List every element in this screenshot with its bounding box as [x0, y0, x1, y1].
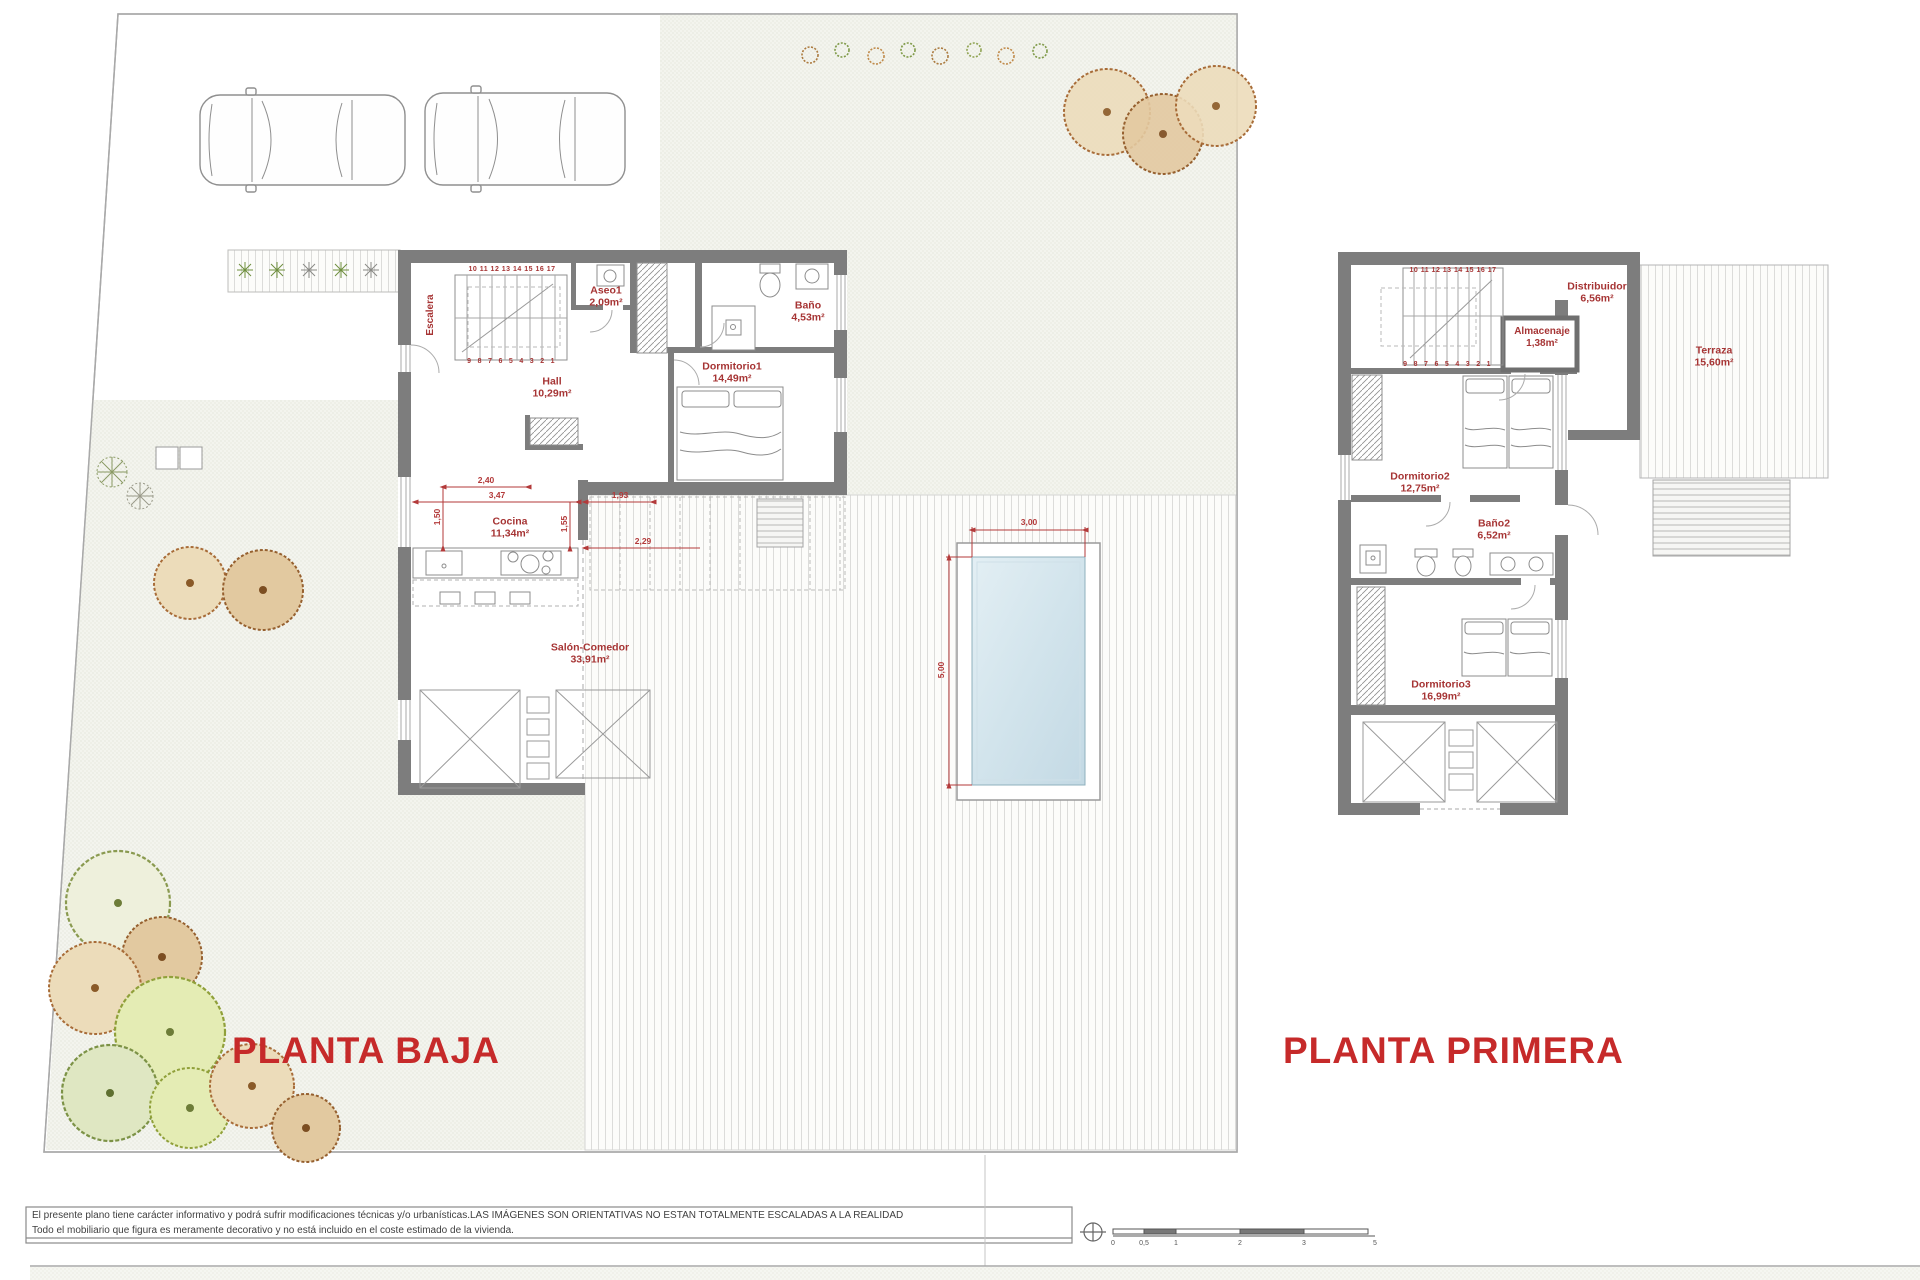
pool-dim-width: 3,00	[1021, 517, 1038, 527]
pool	[957, 543, 1100, 800]
room-area: 6,52m²	[1477, 530, 1510, 542]
dim-155: 1,55	[559, 516, 569, 533]
disclaimer-line-2: Todo el mobiliario que figura es meramen…	[32, 1225, 514, 1236]
room-name: Baño2	[1477, 518, 1510, 530]
room-name: Almacenaje	[1514, 326, 1570, 338]
scale-label-2: 2	[1238, 1240, 1242, 1247]
room-name: Distribuidor	[1567, 281, 1627, 293]
dim-347: 3,47	[489, 490, 506, 500]
title-planta-primera: PLANTA PRIMERA	[1283, 1030, 1624, 1072]
room-label-salon: Salón-Comedor 33,91m²	[551, 642, 629, 667]
room-area: 6,56m²	[1567, 293, 1627, 305]
disclaimer-line-1: El presente plano tiene carácter informa…	[32, 1210, 903, 1221]
scale-label-0: 0	[1111, 1240, 1115, 1247]
room-area: 12,75m²	[1390, 483, 1450, 495]
room-area: 2,09m²	[589, 297, 622, 309]
room-name: Aseo1	[589, 285, 622, 297]
first-floor-plan	[1338, 252, 1828, 815]
car-2	[425, 86, 625, 192]
room-area: 11,34m²	[491, 528, 530, 540]
room-label-escalera: Escalera	[425, 294, 437, 335]
room-name: Dormitorio3	[1411, 679, 1471, 691]
room-name: Dormitorio1	[702, 361, 762, 373]
room-label-bano: Baño 4,53m²	[791, 300, 824, 325]
plan-drawing	[0, 0, 1920, 1280]
room-label-cocina: Cocina 11,34m²	[491, 516, 530, 541]
room-label-aseo1: Aseo1 2,09m²	[589, 285, 622, 310]
scale-label-5: 5	[1373, 1240, 1377, 1247]
hedge	[228, 250, 400, 292]
room-label-almacenaje: Almacenaje 1,38m²	[1514, 326, 1570, 350]
dim-240: 2,40	[478, 475, 495, 485]
stair-numbers-bottom-ground: 9 8 7 6 5 4 3 2 1	[467, 358, 557, 366]
car-1	[200, 88, 405, 192]
room-area: 4,53m²	[791, 312, 824, 324]
dim-229: 2,29	[635, 536, 652, 546]
scale-label-05: 0,5	[1139, 1240, 1149, 1247]
scale-bar	[1113, 1229, 1375, 1236]
stair-numbers-top-first: 10 11 12 13 14 15 16 17	[1409, 267, 1496, 275]
bed-dorm1	[677, 387, 783, 480]
scale-label-1: 1	[1174, 1240, 1178, 1247]
room-name: Terraza	[1694, 345, 1733, 357]
north-symbol	[1080, 1223, 1106, 1241]
bottom-strip	[30, 1266, 1920, 1280]
room-label-bano2: Baño2 6,52m²	[1477, 518, 1510, 543]
room-area: 33,91m²	[551, 654, 629, 666]
room-area: 16,99m²	[1411, 691, 1471, 703]
dim-150: 1,50	[432, 509, 442, 526]
room-label-distribuidor: Distribuidor 6,56m²	[1567, 281, 1627, 306]
room-name: Hall	[532, 376, 571, 388]
dim-193: 1,93	[612, 490, 629, 500]
terraza-deck	[1640, 265, 1828, 478]
scale-label-3: 3	[1302, 1240, 1306, 1247]
room-area: 1,38m²	[1514, 338, 1570, 350]
room-area: 15,60m²	[1694, 357, 1733, 369]
pool-dim-height: 5,00	[936, 662, 946, 679]
room-label-terraza: Terraza 15,60m²	[1694, 345, 1733, 370]
room-label-hall: Hall 10,29m²	[532, 376, 571, 401]
terraza-louver	[1653, 480, 1790, 556]
pool-deck	[585, 495, 1237, 1150]
room-name: Cocina	[491, 516, 530, 528]
room-area: 10,29m²	[532, 388, 571, 400]
room-label-dormitorio1: Dormitorio1 14,49m²	[702, 361, 762, 386]
room-name: Baño	[791, 300, 824, 312]
stair-numbers-top-ground: 10 11 12 13 14 15 16 17	[468, 266, 555, 274]
room-name: Salón-Comedor	[551, 642, 629, 654]
room-area: 14,49m²	[702, 373, 762, 385]
room-name: Dormitorio2	[1390, 471, 1450, 483]
title-planta-baja: PLANTA BAJA	[232, 1030, 500, 1072]
stair-numbers-bottom-first: 9 8 7 6 5 4 3 2 1	[1403, 361, 1493, 369]
floor-plan-sheet: Escalera 10 11 12 13 14 15 16 17 9 8 7 6…	[0, 0, 1920, 1280]
room-label-dormitorio2: Dormitorio2 12,75m²	[1390, 471, 1450, 496]
room-label-dormitorio3: Dormitorio3 16,99m²	[1411, 679, 1471, 704]
